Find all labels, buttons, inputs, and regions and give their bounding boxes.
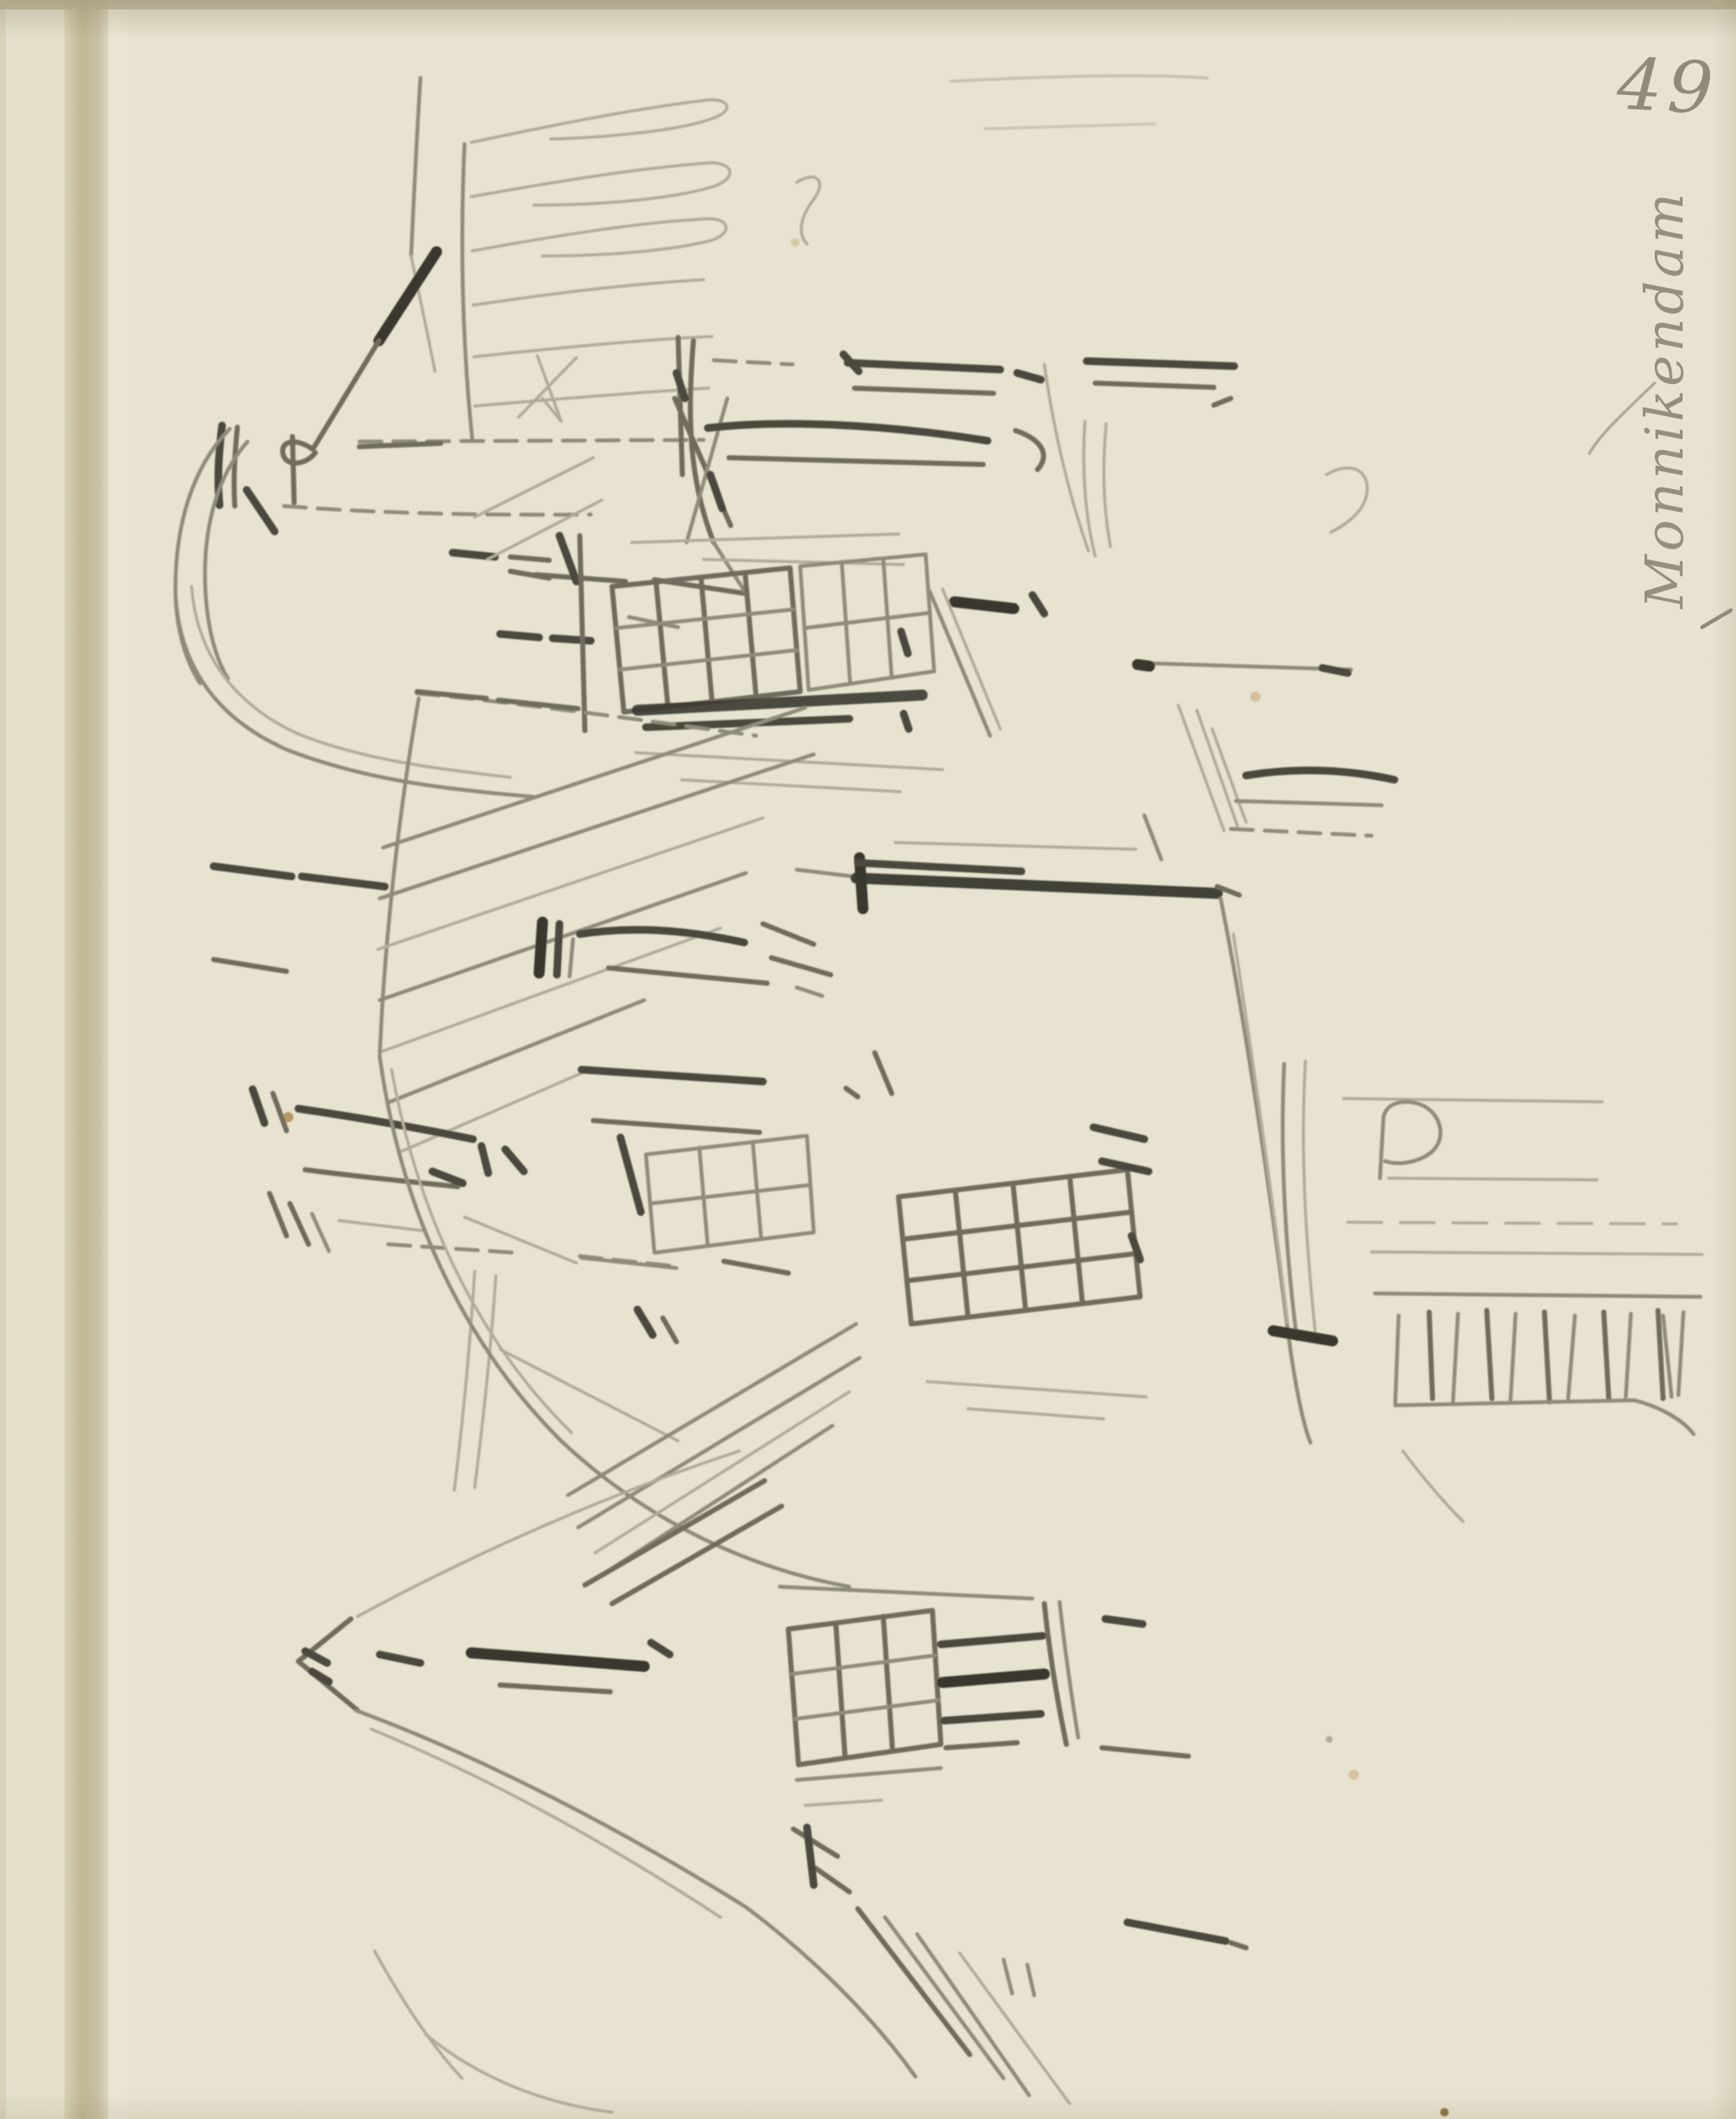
sketch-artwork: 49 Monnikendam [0, 0, 1736, 2119]
paper-grain-texture [0, 0, 1736, 2119]
sketchbook-page-scan: 49 Monnikendam [0, 0, 1736, 2119]
